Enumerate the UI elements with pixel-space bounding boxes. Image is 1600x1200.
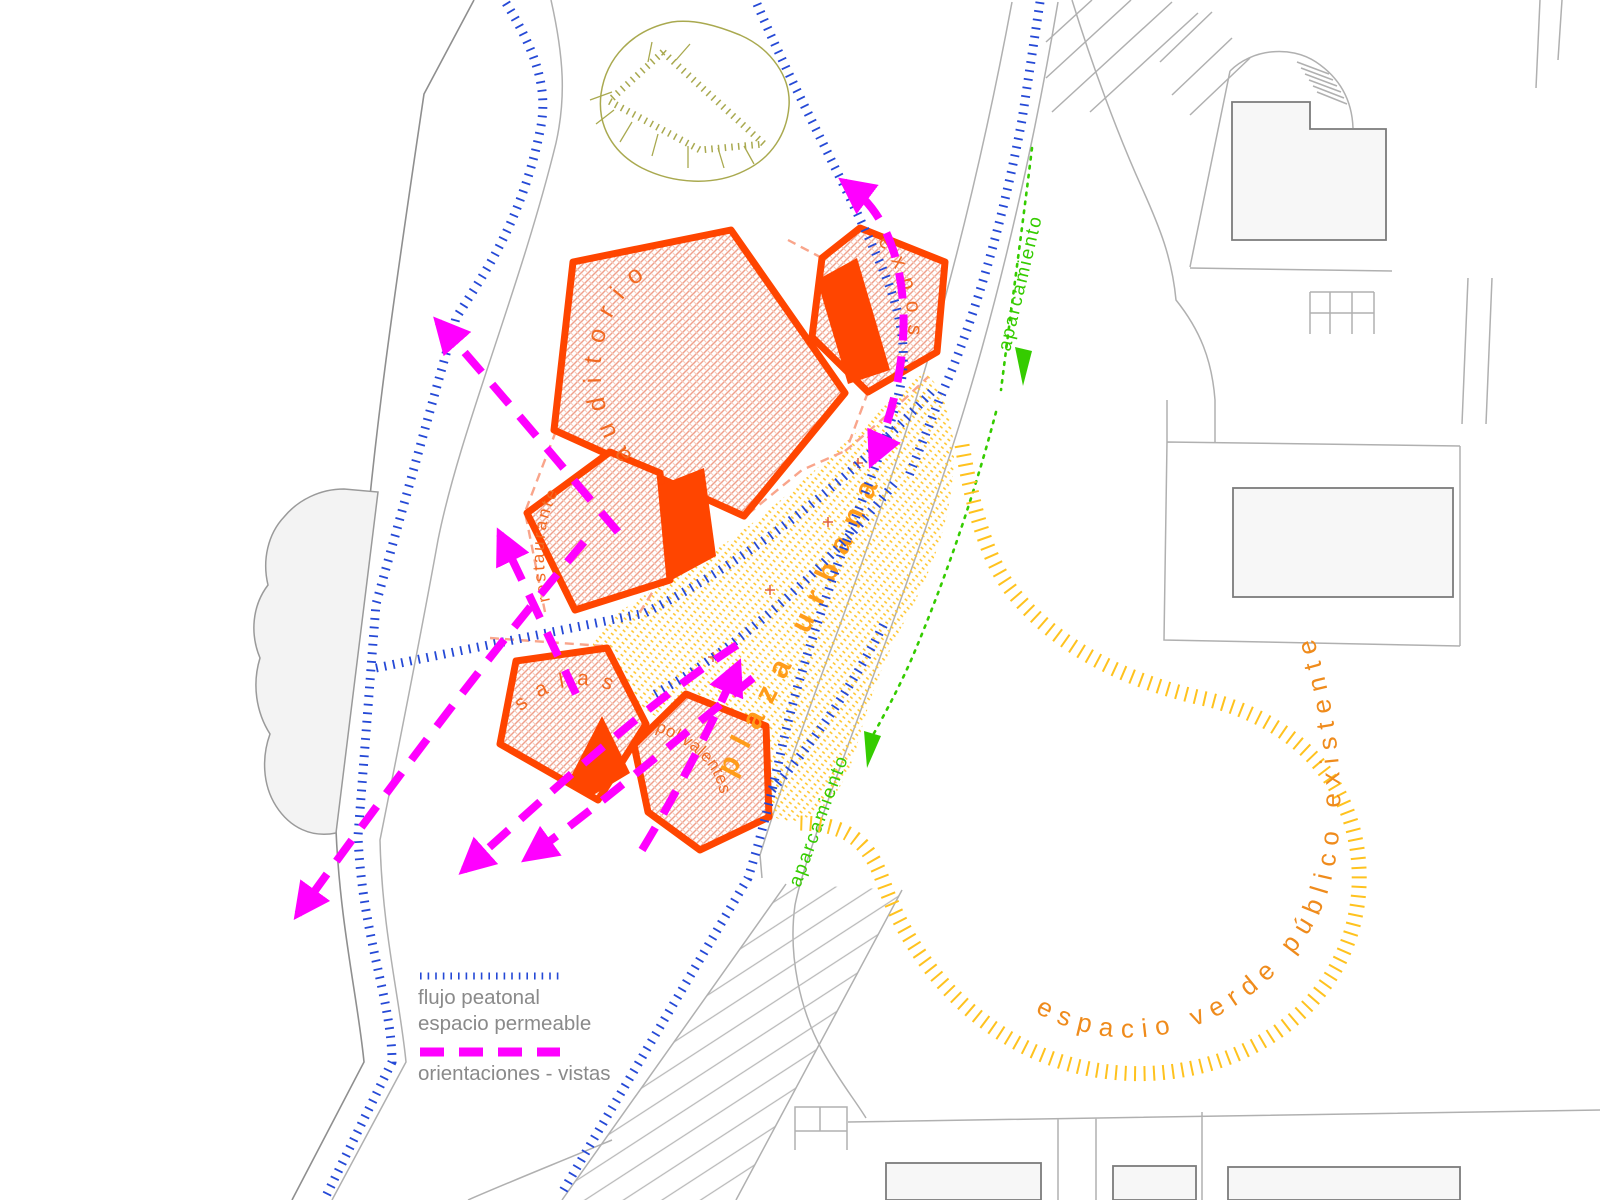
site-plan-svg: auditorio restaurante expos salas poliva… bbox=[0, 0, 1600, 1200]
legend-views-label: orientaciones - vistas bbox=[418, 1062, 611, 1085]
existing-building-south-2 bbox=[1113, 1166, 1196, 1200]
existing-building-east bbox=[1233, 488, 1453, 597]
site-plan-page: auditorio restaurante expos salas poliva… bbox=[0, 0, 1600, 1200]
existing-building-south-3 bbox=[1228, 1167, 1460, 1200]
existing-building-south-1 bbox=[886, 1163, 1041, 1200]
legend-flow-label-2: espacio permeable bbox=[418, 1012, 591, 1035]
legend-flow-label-1: flujo peatonal bbox=[418, 986, 540, 1009]
